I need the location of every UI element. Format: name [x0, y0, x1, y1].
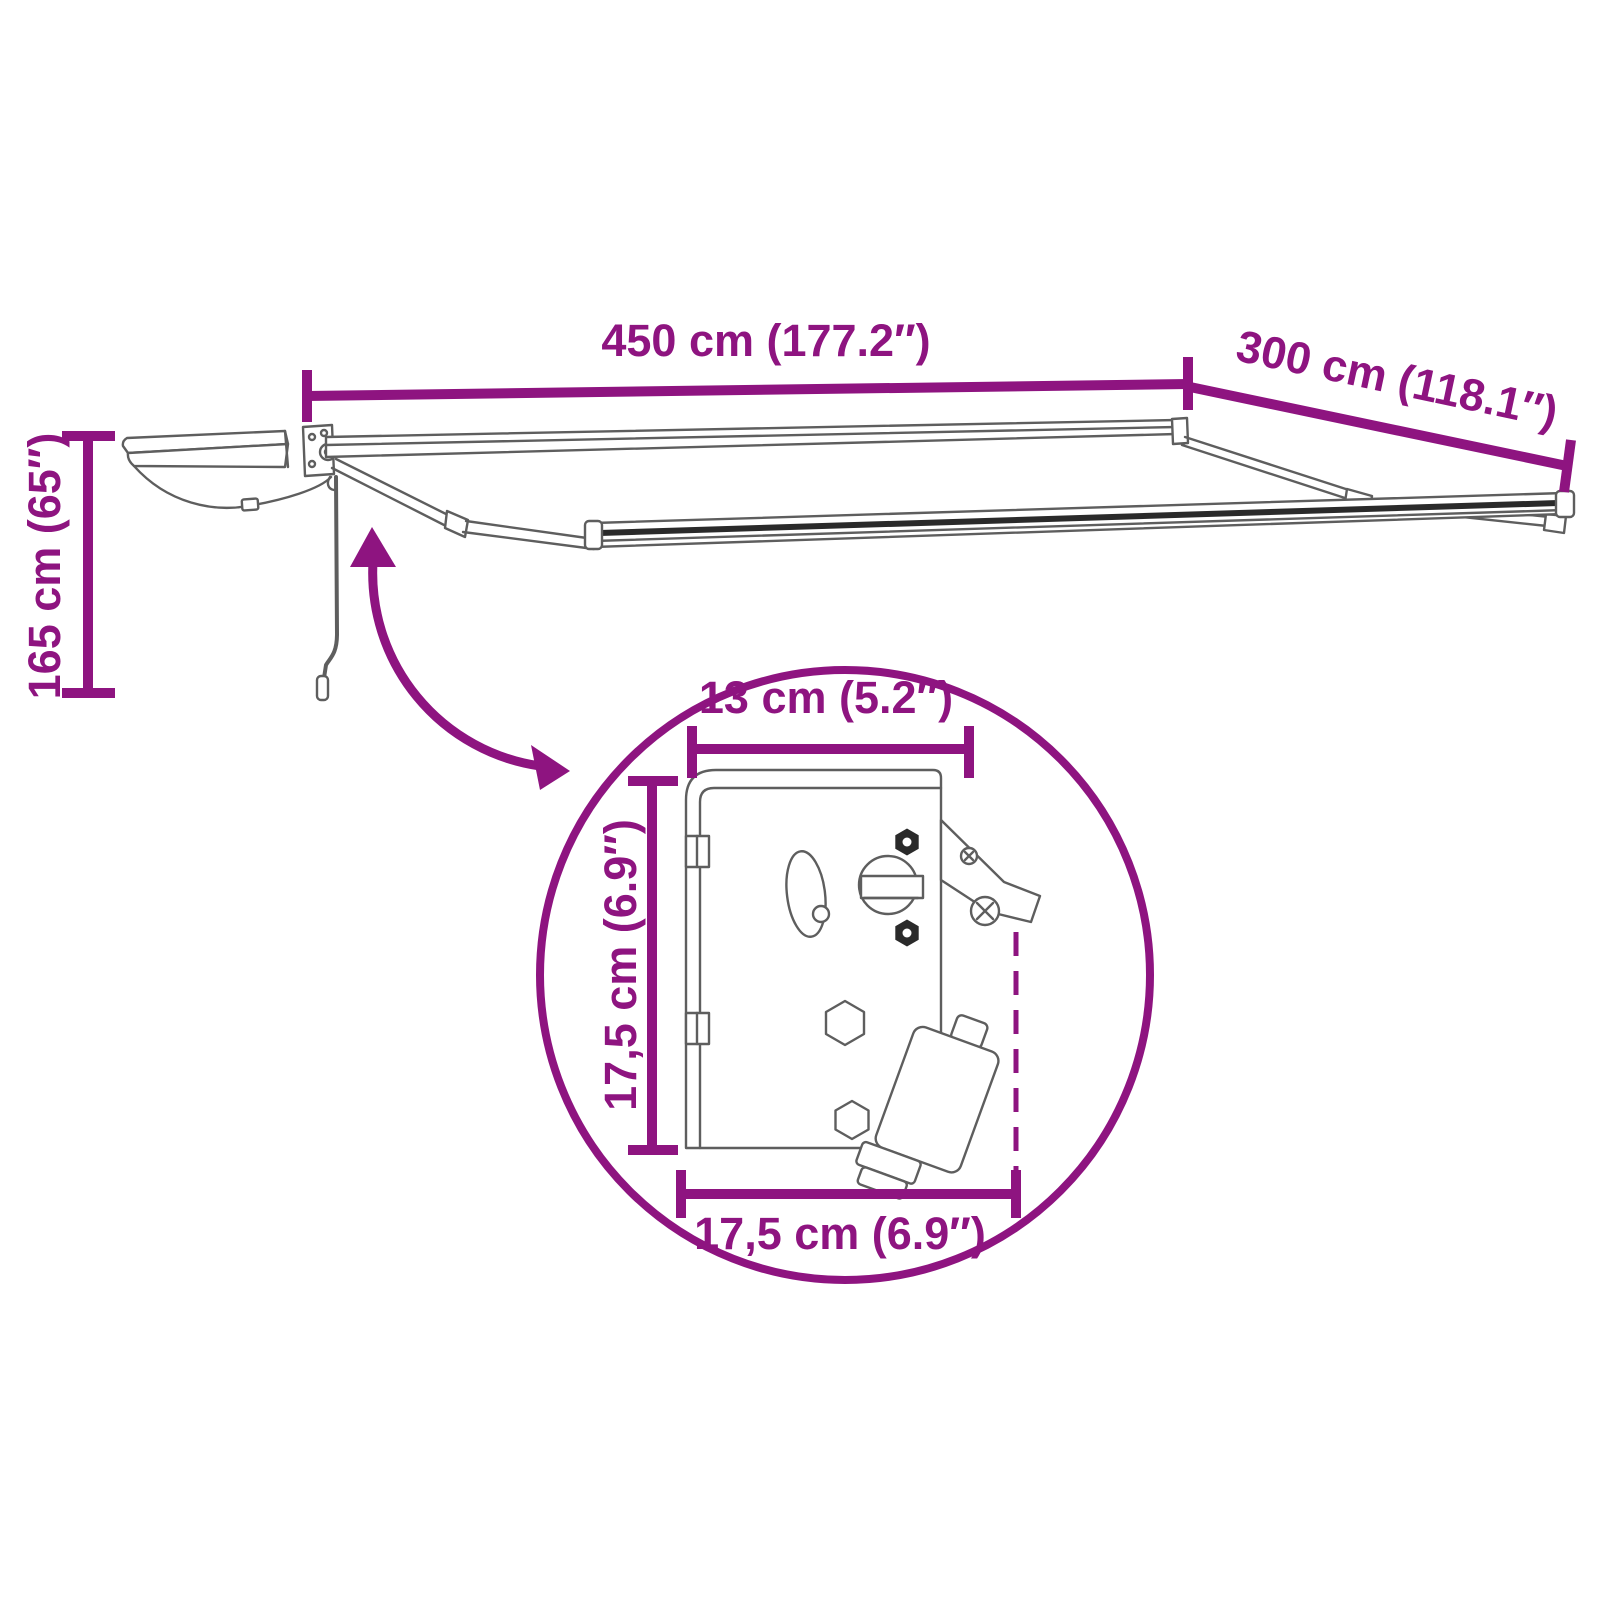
dimension-height-label: 165 cm (65″): [19, 433, 70, 700]
dimension-width-450: 450 cm (177.2″): [307, 315, 1188, 422]
diagram-svg: 450 cm (177.2″) 300 cm (118.1″) 165 cm (…: [0, 0, 1600, 1600]
hex-bolt-lower: [836, 1101, 869, 1139]
hex-bolt-upper: [826, 1001, 864, 1045]
side-bracket: [941, 820, 1040, 925]
crank-handle: [317, 477, 337, 700]
dimension-detail-bottom-label: 17,5 cm (6.9″): [694, 1208, 986, 1259]
dimension-detail-side-label: 17,5 cm (6.9″): [595, 819, 646, 1111]
dimension-projection-label: 300 cm (118.1″): [1232, 320, 1562, 438]
front-bar: [585, 491, 1574, 549]
zoom-arrow-icon: [350, 527, 570, 790]
pull-cord: [134, 466, 331, 508]
awning-dimension-diagram: 450 cm (177.2″) 300 cm (118.1″) 165 cm (…: [0, 0, 1600, 1600]
bracket-detail-drawing: [686, 770, 1040, 1215]
dimension-detail-side: 17,5 cm (6.9″): [595, 781, 678, 1150]
cord-connector: [242, 498, 259, 510]
valance-bar: [123, 431, 288, 467]
dimension-width-label: 450 cm (177.2″): [601, 315, 930, 366]
dimension-detail-top: 13 cm (5.2″): [692, 672, 969, 778]
cassette-bar: [326, 418, 1188, 457]
dimension-detail-top-label: 13 cm (5.2″): [699, 672, 953, 723]
dimension-height-165: 165 cm (65″): [19, 433, 115, 700]
awning-drawing: [123, 418, 1574, 700]
